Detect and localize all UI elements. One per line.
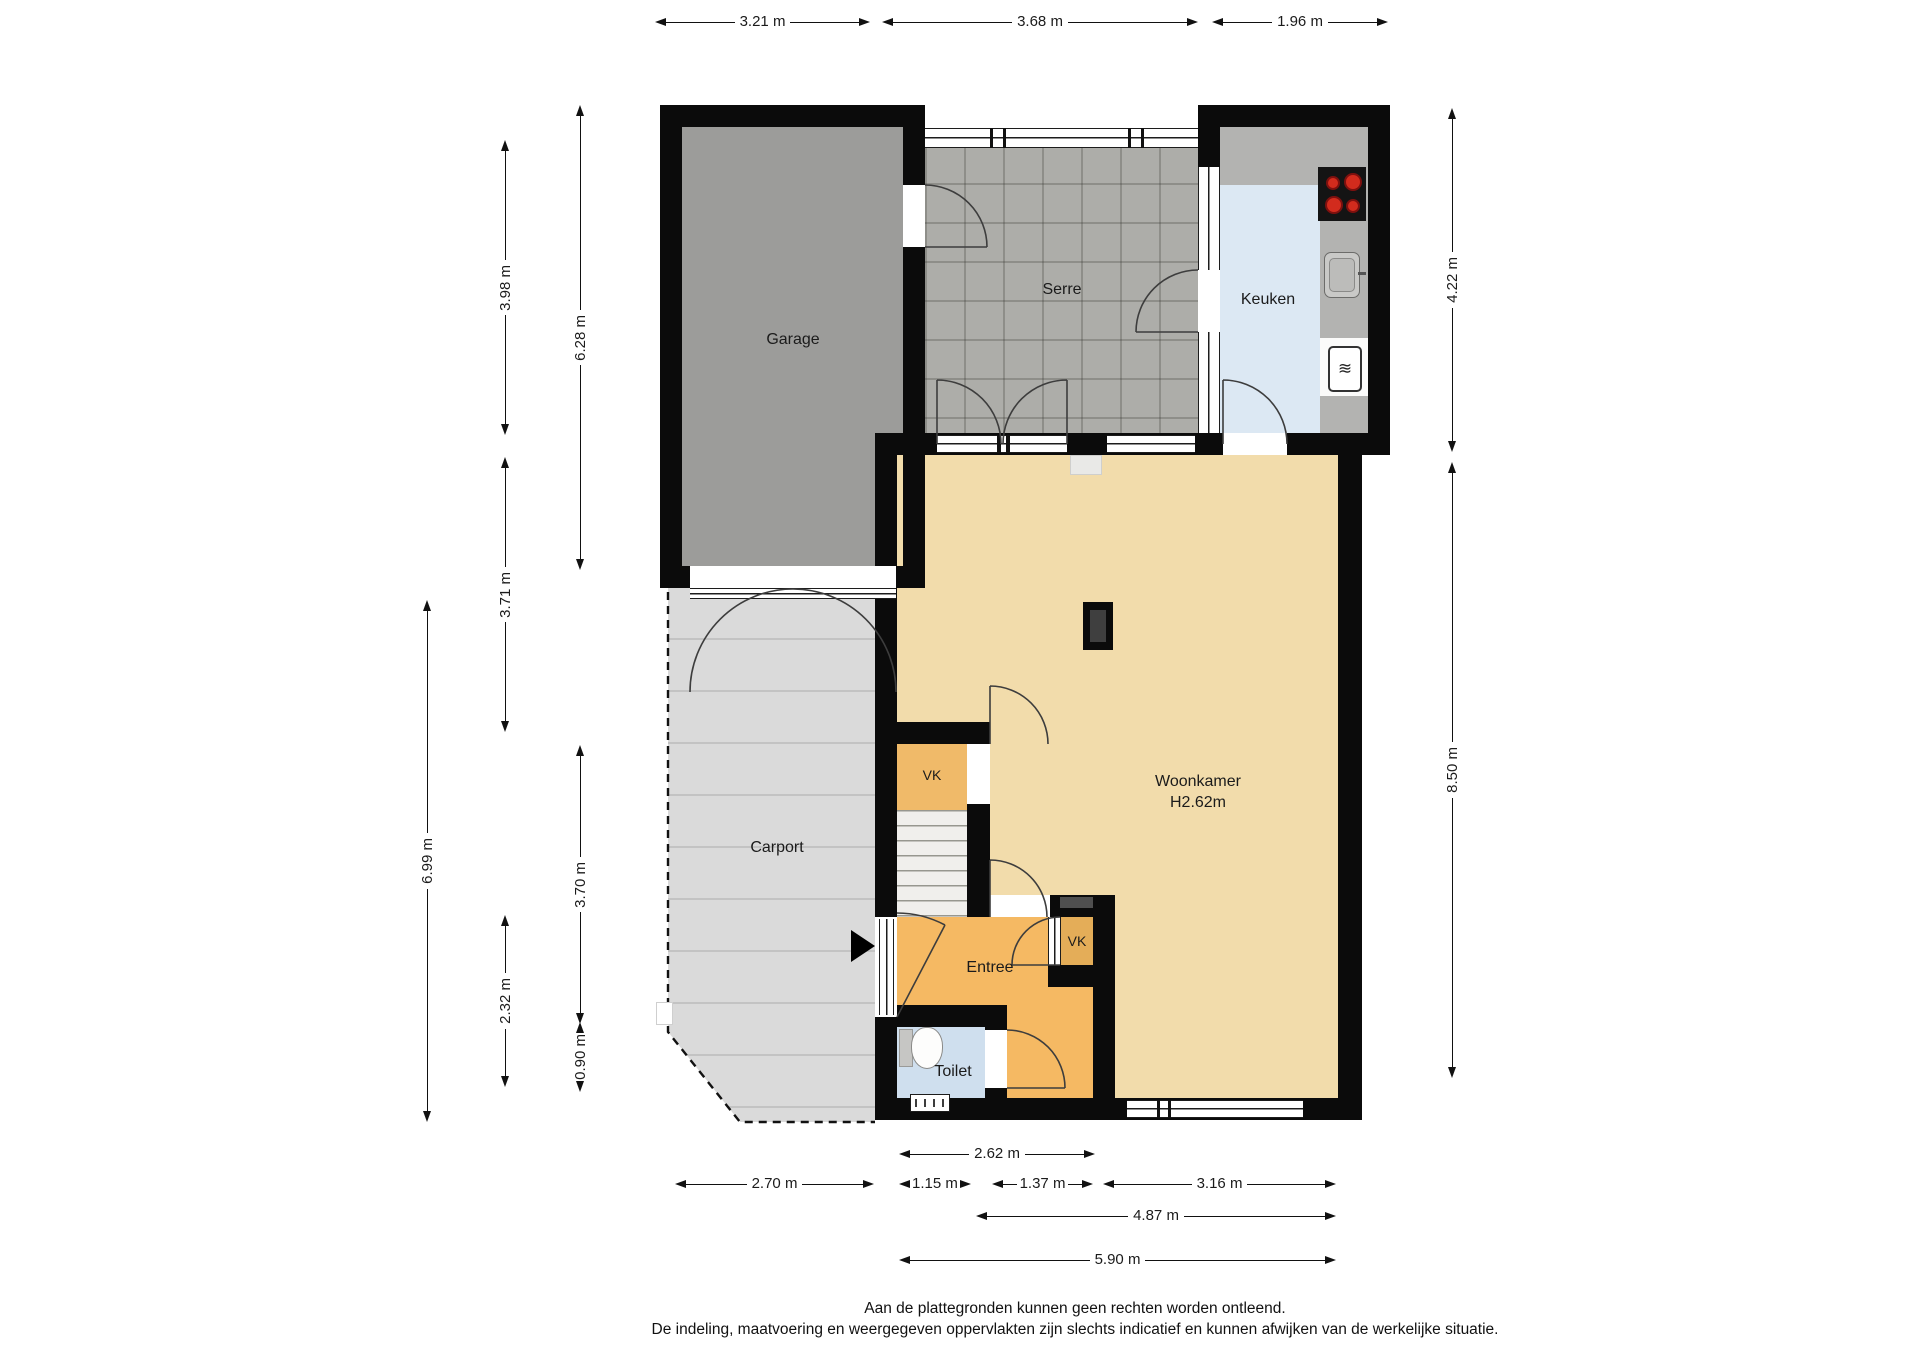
disclaimer-line-1: Aan de plattegronden kunnen geen rechten…	[555, 1298, 1595, 1319]
dim-left-370: 3.70 m	[572, 745, 588, 1024]
room-label-toilet: Toilet	[934, 1063, 971, 1081]
dim-bottom-590: 5.90 m	[899, 1252, 1336, 1268]
room-label-carport: Carport	[750, 839, 803, 857]
dim-bottom-270: 2.70 m	[675, 1176, 874, 1192]
floorplan-canvas: ≋	[0, 0, 1920, 1358]
dim-bottom-137: 1.37 m	[992, 1176, 1093, 1192]
dim-left-699: 6.99 m	[419, 600, 435, 1122]
dim-top-0: 3.21 m	[655, 14, 870, 30]
room-label-woonkamer-height: H2.62m	[1170, 794, 1226, 812]
disclaimer-line-2: De indeling, maatvoering en weergegeven …	[555, 1319, 1595, 1340]
dim-left-090: 0.90 m	[572, 1022, 588, 1096]
dim-left-628: 6.28 m	[572, 105, 588, 570]
dim-bottom-316: 3.16 m	[1103, 1176, 1336, 1192]
dim-left-232: 2.32 m	[497, 915, 513, 1087]
dim-bottom-487: 4.87 m	[976, 1208, 1336, 1224]
dim-right-850: 8.50 m	[1444, 462, 1460, 1078]
disclaimer: Aan de plattegronden kunnen geen rechten…	[555, 1298, 1595, 1340]
room-label-garage: Garage	[766, 331, 819, 349]
dim-top-1: 3.68 m	[882, 14, 1198, 30]
carport-dashed-boundary	[668, 592, 875, 1122]
room-label-entree: Entree	[966, 959, 1013, 977]
dim-top-2: 1.96 m	[1212, 14, 1388, 30]
dim-bottom-262: 2.62 m	[899, 1146, 1095, 1162]
dim-left-371: 3.71 m	[497, 457, 513, 732]
room-label-vk-upper: VK	[923, 767, 942, 783]
room-label-vk-lower: VK	[1068, 933, 1087, 949]
dim-right-422: 4.22 m	[1444, 108, 1460, 452]
dim-bottom-115: 1.15 m	[899, 1176, 982, 1192]
room-label-serre: Serre	[1042, 281, 1081, 299]
gate-marker	[656, 1002, 673, 1025]
dim-left-398: 3.98 m	[497, 140, 513, 435]
room-label-keuken: Keuken	[1241, 291, 1295, 309]
room-label-woonkamer: Woonkamer	[1155, 773, 1241, 791]
